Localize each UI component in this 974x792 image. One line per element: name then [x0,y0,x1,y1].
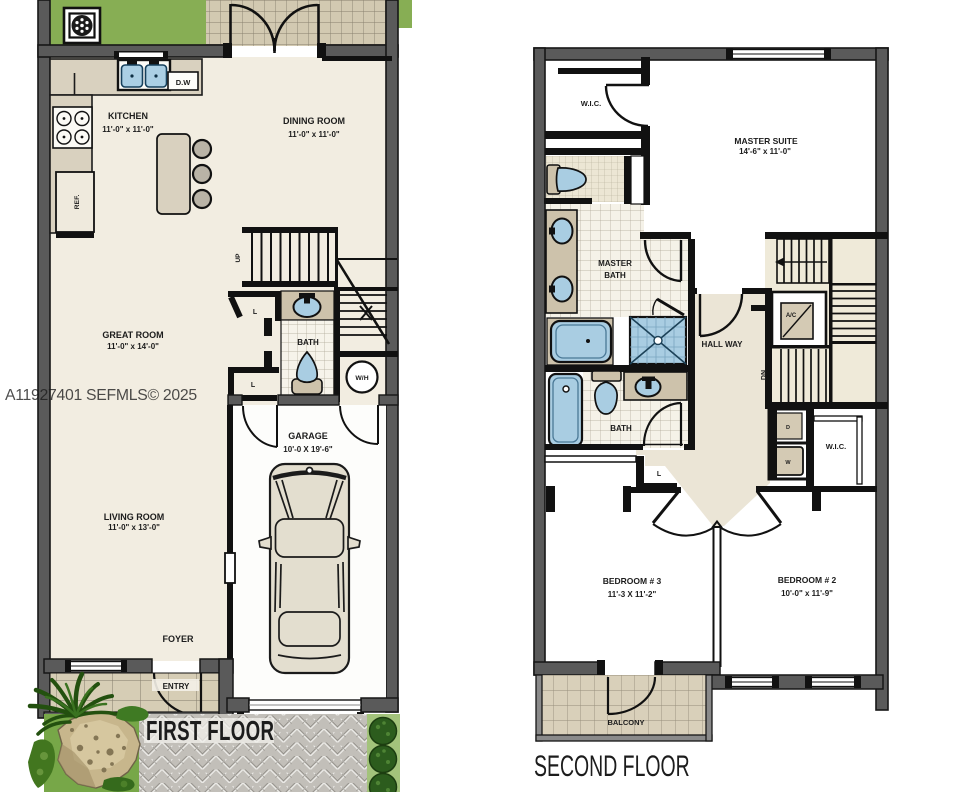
svg-text:GARAGE: GARAGE [288,431,328,441]
svg-text:A11927401 SEFMLS© 2025: A11927401 SEFMLS© 2025 [5,387,197,404]
svg-text:A/C: A/C [786,313,797,319]
svg-text:11'-0" x 14'-0": 11'-0" x 14'-0" [107,342,159,351]
svg-text:GREAT ROOM: GREAT ROOM [102,330,163,340]
svg-text:BATH: BATH [297,338,319,347]
svg-text:W: W [785,460,791,466]
svg-text:W/H: W/H [355,375,368,382]
svg-text:L: L [657,471,662,478]
svg-text:UP: UP [235,253,242,263]
svg-text:L: L [251,382,256,389]
svg-text:D: D [786,425,790,431]
svg-text:FIRST FLOOR: FIRST FLOOR [146,715,274,745]
svg-text:11'-0" x 11'-0": 11'-0" x 11'-0" [288,130,340,139]
svg-text:10'-0 X 19'-6": 10'-0 X 19'-6" [283,445,333,454]
svg-text:10'-0" x 11'-9": 10'-0" x 11'-9" [781,589,833,598]
svg-text:KITCHEN: KITCHEN [108,111,148,121]
svg-text:MASTER: MASTER [598,259,632,268]
svg-text:BEDROOM # 3: BEDROOM # 3 [603,576,662,586]
svg-text:BALCONY: BALCONY [607,718,644,727]
svg-text:HALL WAY: HALL WAY [702,340,744,349]
svg-text:W.I.C.: W.I.C. [826,442,846,451]
svg-text:SECOND FLOOR: SECOND FLOOR [534,750,690,783]
svg-text:W.I.C.: W.I.C. [581,99,601,108]
svg-text:LIVING ROOM: LIVING ROOM [104,512,165,522]
svg-text:BEDROOM # 2: BEDROOM # 2 [778,575,837,585]
svg-text:ENTRY: ENTRY [163,682,190,691]
svg-text:L: L [253,309,258,316]
svg-text:11'-0" x 11'-0": 11'-0" x 11'-0" [102,125,154,134]
svg-text:REF.: REF. [74,195,81,210]
svg-text:11'-0" x 13'-0": 11'-0" x 13'-0" [108,523,160,532]
svg-text:DINING ROOM: DINING ROOM [283,116,345,126]
svg-text:BATH: BATH [610,424,632,433]
svg-text:D.W: D.W [176,78,192,87]
svg-text:14'-6" x 11'-0": 14'-6" x 11'-0" [739,147,791,156]
svg-text:MASTER SUITE: MASTER SUITE [734,136,798,146]
svg-text:BATH: BATH [604,271,626,280]
svg-text:DN: DN [761,370,768,380]
svg-text:11'-3 X 11'-2": 11'-3 X 11'-2" [608,590,657,599]
svg-text:FOYER: FOYER [162,634,194,644]
